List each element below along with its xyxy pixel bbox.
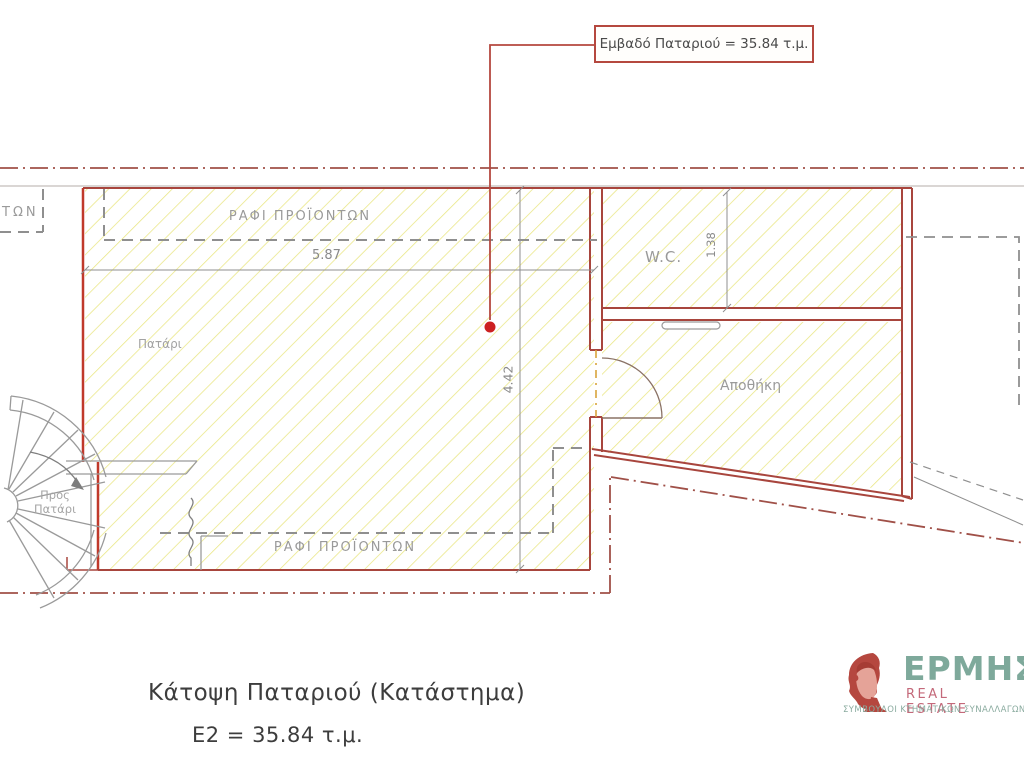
- dimension-wc: 1.38: [704, 232, 718, 258]
- patari-room-label: Πατάρι: [138, 337, 182, 352]
- shelves-label-bottom: ΡΑΦΙ ΠΡΟΪΟΝΤΩΝ: [230, 540, 460, 556]
- drawing-area-value: Ε2 = 35.84 τ.μ.: [192, 723, 525, 747]
- storage-room-label: Αποθήκη: [720, 378, 781, 396]
- area-annotation-callout: Εμβαδό Παταριού = 35.84 τ.μ.: [594, 25, 814, 63]
- annotation-dot: [485, 322, 496, 333]
- shelves-label-partial: ΤΩΝ: [2, 205, 39, 221]
- sink-fixture: [662, 322, 720, 329]
- logo-brand-text: ΕΡΜΗΣ: [903, 649, 1024, 688]
- hermes-head-icon: [843, 651, 901, 713]
- logo-tagline-text: ΣΥΜΒΟΥΛΟΙ ΚΤΗΜΑΤΙΚΩΝ ΣΥΝΑΛΛΑΓΩΝ: [843, 705, 1024, 715]
- shelves-label-top: ΡΑΦΙ ΠΡΟΪΟΝΤΩΝ: [120, 209, 480, 225]
- wc-room-label: W.C.: [645, 248, 682, 267]
- to-loft-label: Προς Πατάρι: [22, 488, 88, 517]
- neighbor-outline-lines: [906, 237, 1023, 525]
- patari-room-area: [85, 188, 594, 570]
- storage-room-area: [602, 322, 902, 492]
- company-logo: ΕΡΜΗΣ REAL ESTATE ΣΥΜΒΟΥΛΟΙ ΚΤΗΜΑΤΙΚΩΝ Σ…: [843, 649, 1018, 717]
- floor-plan-page: Εμβαδό Παταριού = 35.84 τ.μ. ΤΩΝ ΡΑΦΙ ΠΡ…: [0, 0, 1024, 768]
- hatched-rooms: [85, 188, 912, 570]
- drawing-title: Κάτοψη Παταριού (Κατάστημα): [148, 680, 525, 706]
- drawing-title-block: Κάτοψη Παταριού (Κατάστημα) Ε2 = 35.84 τ…: [148, 680, 525, 747]
- dimension-height: 4.42: [500, 366, 515, 394]
- right-wall-cavity: [902, 188, 912, 496]
- dimension-width: 5.87: [312, 248, 341, 263]
